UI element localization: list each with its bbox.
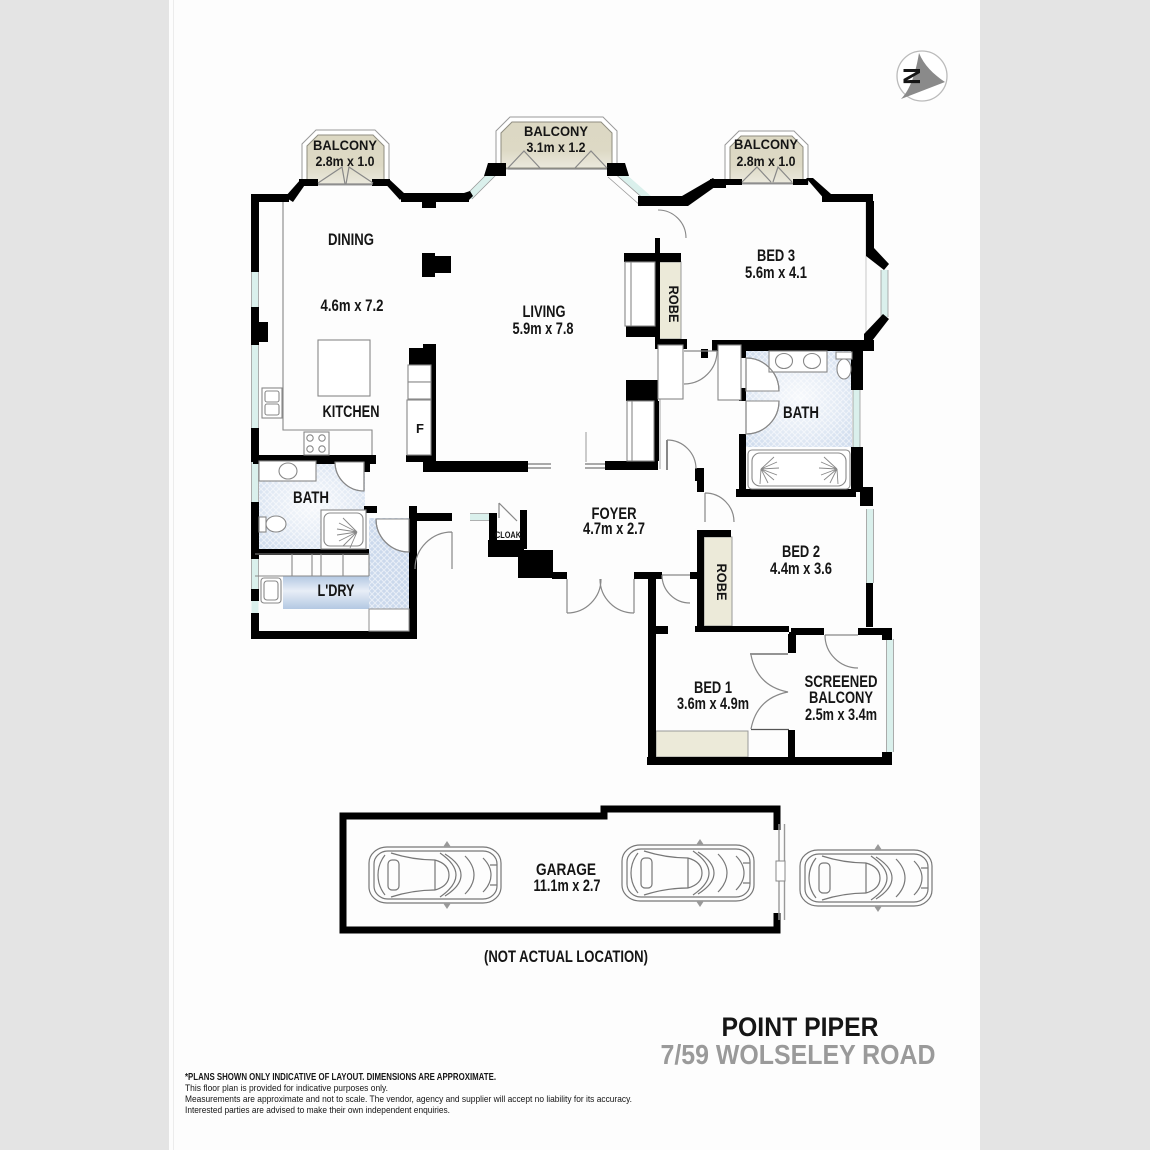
svg-text:3.1m x 1.2: 3.1m x 1.2 <box>527 140 586 155</box>
svg-text:5.9m x 7.8: 5.9m x 7.8 <box>513 320 574 338</box>
svg-text:ROBE: ROBE <box>714 564 730 601</box>
svg-text:2.8m x 1.0: 2.8m x 1.0 <box>316 154 375 169</box>
svg-text:LIVING: LIVING <box>523 302 566 321</box>
svg-text:This floor plan is provided fo: This floor plan is provided for indicati… <box>185 1083 388 1094</box>
svg-text:N: N <box>898 67 925 84</box>
svg-text:5.6m x 4.1: 5.6m x 4.1 <box>745 264 807 282</box>
svg-text:POINT PIPER: POINT PIPER <box>722 1012 879 1042</box>
svg-text:L'DRY: L'DRY <box>318 581 355 600</box>
svg-text:7/59 WOLSELEY ROAD: 7/59 WOLSELEY ROAD <box>661 1039 936 1070</box>
svg-text:Measurements are approximate a: Measurements are approximate and not to … <box>185 1094 632 1105</box>
svg-text:BATH: BATH <box>783 403 819 422</box>
svg-text:F: F <box>416 421 424 436</box>
svg-text:*PLANS SHOWN ONLY INDICATIVE O: *PLANS SHOWN ONLY INDICATIVE OF LAYOUT. … <box>185 1072 496 1083</box>
svg-text:ROBE: ROBE <box>666 286 682 323</box>
svg-text:KITCHEN: KITCHEN <box>323 402 380 421</box>
svg-text:11.1m x 2.7: 11.1m x 2.7 <box>534 877 601 895</box>
svg-text:BALCONY: BALCONY <box>313 138 377 153</box>
svg-text:4.4m x 3.6: 4.4m x 3.6 <box>770 560 832 578</box>
svg-text:BED 2: BED 2 <box>782 542 820 561</box>
svg-text:BED 3: BED 3 <box>757 246 795 265</box>
svg-text:2.8m x 1.0: 2.8m x 1.0 <box>737 154 796 169</box>
svg-text:CLOAK: CLOAK <box>495 530 521 540</box>
svg-text:BALCONY: BALCONY <box>734 137 798 152</box>
svg-text:(NOT ACTUAL LOCATION): (NOT ACTUAL LOCATION) <box>484 947 648 966</box>
svg-text:4.6m x 7.2: 4.6m x 7.2 <box>321 297 384 315</box>
svg-text:Interested parties are advised: Interested parties are advised to make t… <box>185 1105 450 1116</box>
svg-text:BATH: BATH <box>293 488 329 507</box>
svg-text:BALCONY: BALCONY <box>524 124 588 139</box>
svg-text:4.7m x 2.7: 4.7m x 2.7 <box>583 520 645 538</box>
svg-text:2.5m x 3.4m: 2.5m x 3.4m <box>805 706 877 724</box>
svg-text:3.6m x 4.9m: 3.6m x 4.9m <box>677 695 749 713</box>
svg-text:BALCONY: BALCONY <box>809 688 873 707</box>
svg-text:DINING: DINING <box>328 230 374 249</box>
